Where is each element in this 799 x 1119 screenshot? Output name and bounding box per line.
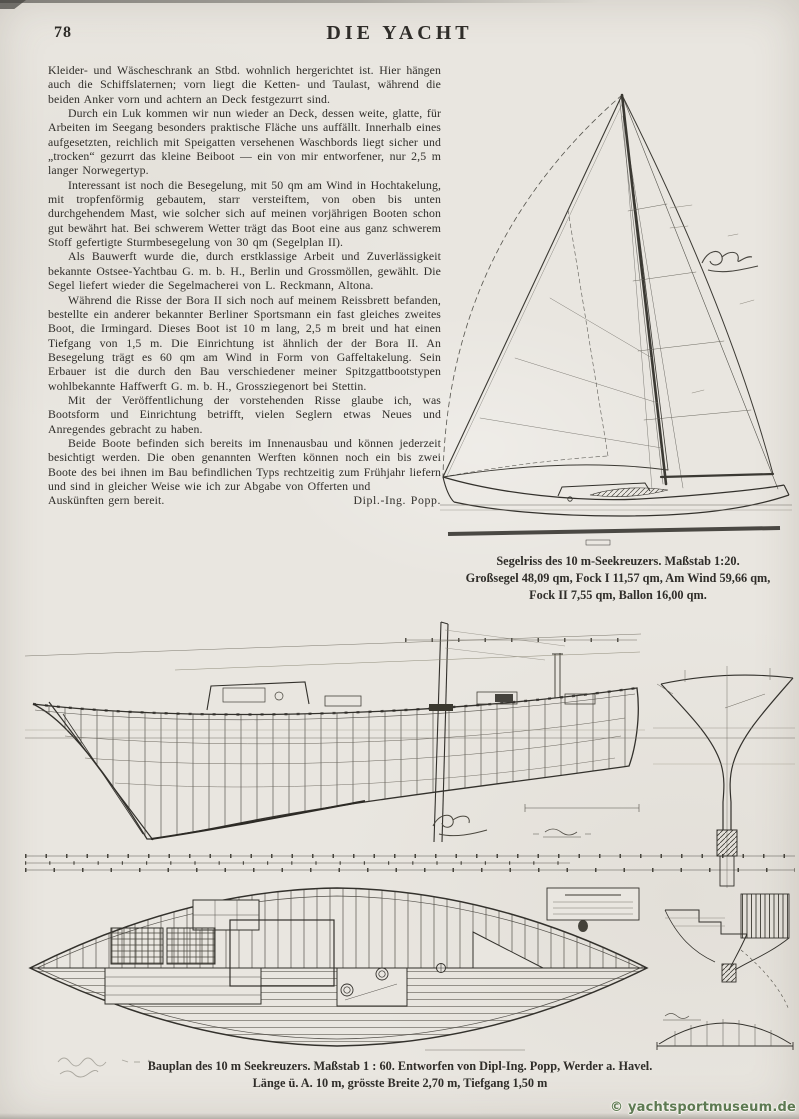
author-signature: Dipl.-Ing. Popp. <box>354 493 441 507</box>
sail-caption-title: Segelriss des 10 m-Seekreuzers. <box>496 554 661 568</box>
longitudinal-section <box>25 622 795 842</box>
sail-plan-drawing <box>440 58 798 550</box>
article-paragraph: Als Bauwerft wurde die, durch erstklassi… <box>48 249 441 292</box>
designer-signature-squiggle <box>702 251 758 271</box>
article-paragraph: Beide Boote befinden sich bereits im Inn… <box>48 436 441 493</box>
construction-plan-drawing <box>25 618 797 1058</box>
scanned-magazine-page: 78 DIE YACHT Kleider- und Wäscheschrank … <box>0 0 799 1119</box>
magazine-masthead: DIE YACHT <box>0 22 799 45</box>
deck-plan <box>30 888 647 1050</box>
closing-text: Auskünften gern bereit. <box>48 493 164 507</box>
article-text-column: Kleider- und Wäscheschrank an Stbd. wohn… <box>48 63 441 508</box>
diagram-label-squiggle <box>663 1014 701 1021</box>
article-paragraph: Durch ein Luk kommen wir nun wieder an D… <box>48 106 441 178</box>
hull-profile <box>440 477 792 545</box>
sail-caption-areas-2: Fock II 7,55 qm, Ballon 16,00 qm. <box>443 587 793 604</box>
bauplan-caption: Bauplan des 10 m Seekreuzers. Maßstab 1 … <box>60 1058 740 1092</box>
signature-squiggle <box>433 815 487 835</box>
scan-edge-top <box>0 0 799 3</box>
rigging-and-sails <box>443 95 778 489</box>
article-closing-line: Auskünften gern bereit. Dipl.-Ing. Popp. <box>48 493 441 507</box>
scan-corner-mark <box>0 0 26 9</box>
article-paragraph: Kleider- und Wäscheschrank an Stbd. wohn… <box>48 63 441 106</box>
datum-lines-strip <box>25 856 795 870</box>
sail-plan-caption: Segelriss des 10 m-Seekreuzers. Maßstab … <box>443 553 793 604</box>
article-paragraph: Während die Risse der Bora II sich noch … <box>48 293 441 393</box>
bauplan-caption-details: Maßstab 1 : 60. Entworfen von Dipl-Ing. … <box>314 1059 653 1073</box>
plan-inset-table <box>547 888 639 920</box>
sail-caption-areas-1: Großsegel 48,09 qm, Fock I 11,57 qm, Am … <box>443 570 793 587</box>
watermark-text: © yachtsportmuseum.de <box>610 1100 796 1115</box>
handwritten-label <box>533 829 591 837</box>
body-plan-sections <box>653 666 795 1050</box>
sail-caption-scale: Maßstab 1:20. <box>665 554 740 568</box>
article-paragraph: Mit der Veröffentlichung der vorstehende… <box>48 393 441 436</box>
bauplan-caption-dimensions: Länge ü. A. 10 m, grösste Breite 2,70 m,… <box>60 1075 740 1092</box>
bauplan-caption-title: Bauplan des 10 m Seekreuzers. <box>148 1059 311 1073</box>
article-paragraph: Interessant ist noch die Besegelung, mit… <box>48 178 441 250</box>
